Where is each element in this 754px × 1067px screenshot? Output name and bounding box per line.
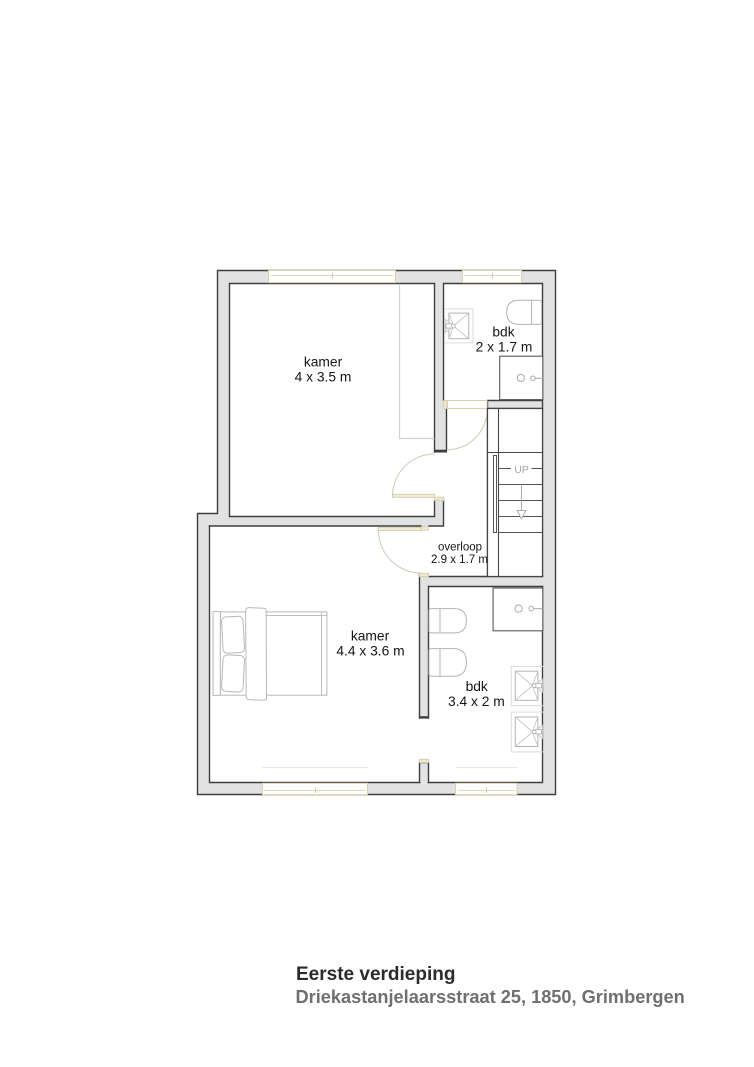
svg-text:UP: UP	[514, 464, 529, 476]
svg-text:2.9 x 1.7 m: 2.9 x 1.7 m	[431, 554, 488, 566]
svg-text:4 x 3.5 m: 4 x 3.5 m	[295, 370, 352, 385]
svg-text:bdk: bdk	[466, 679, 488, 694]
svg-text:2 x 1.7 m: 2 x 1.7 m	[476, 339, 533, 354]
svg-text:overloop: overloop	[438, 542, 482, 554]
svg-text:kamer: kamer	[304, 355, 343, 370]
svg-text:kamer: kamer	[351, 629, 390, 644]
svg-text:bdk: bdk	[492, 325, 514, 340]
svg-text:Driekastanjelaarsstraat 25, 18: Driekastanjelaarsstraat 25, 1850, Grimbe…	[296, 987, 685, 1007]
svg-text:4.4 x 3.6 m: 4.4 x 3.6 m	[336, 644, 404, 659]
svg-text:Eerste verdieping: Eerste verdieping	[296, 964, 455, 985]
svg-text:3.4 x 2 m: 3.4 x 2 m	[448, 694, 505, 709]
